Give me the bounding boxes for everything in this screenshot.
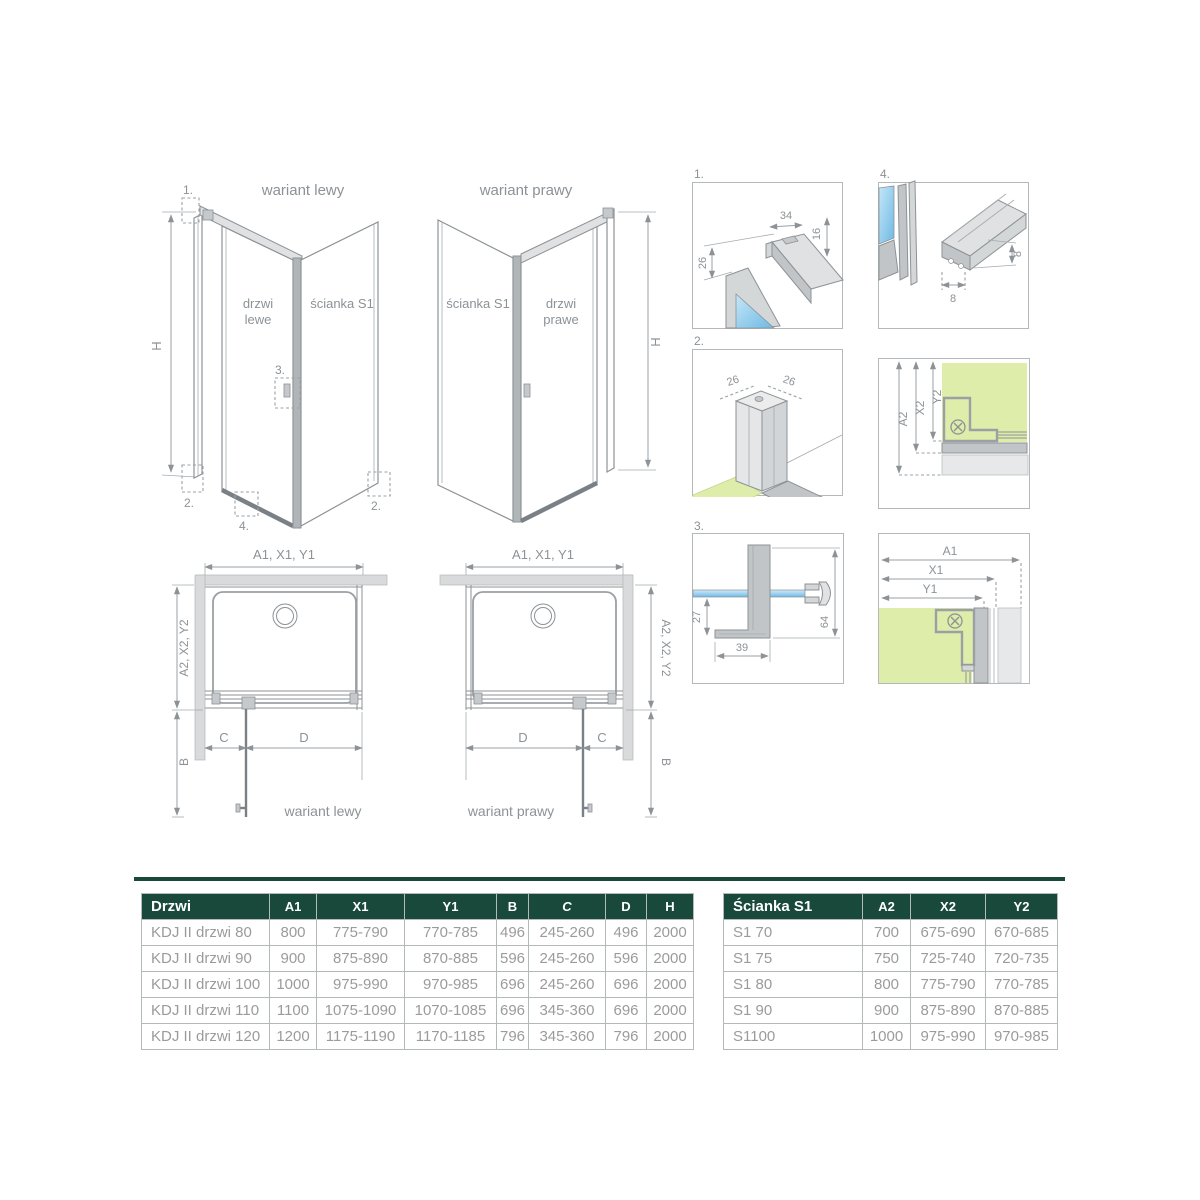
table-cell: 770-785	[986, 972, 1058, 998]
column-header: X2	[911, 894, 986, 920]
dim-8-width: 8	[950, 293, 956, 305]
table-cell: 2000	[647, 998, 694, 1024]
glass-panel	[879, 186, 894, 244]
table-cell: 775-790	[317, 920, 405, 946]
door-table-head: DrzwiA1X1Y1BCDH	[142, 894, 694, 920]
dim-39: 39	[736, 642, 748, 654]
table-cell: 2000	[647, 920, 694, 946]
support-bar-end-face	[766, 242, 772, 258]
door-label-line2: prawe	[543, 312, 578, 327]
wall-label: ścianka S1	[310, 296, 374, 311]
table-row: S11001000975-990970-985	[724, 1024, 1058, 1050]
wall-label: ścianka S1	[446, 296, 510, 311]
dim-a1: A1	[943, 544, 958, 558]
table-cell: 245-260	[529, 920, 606, 946]
dim-34: 34	[780, 210, 792, 222]
dim-y2: Y2	[930, 389, 944, 404]
table-row: S1 70700675-690670-685	[724, 920, 1058, 946]
dim-27: 27	[692, 611, 703, 623]
table-cell: 675-690	[911, 920, 986, 946]
table-cell: 700	[863, 920, 911, 946]
technical-drawing-sheet: wariant lewy H 1. 2. 3.	[0, 0, 1200, 1200]
profile-foot	[962, 665, 974, 671]
bar-bracket	[603, 208, 613, 218]
h-dim-label: H	[648, 337, 663, 346]
table-cell: 596	[497, 946, 529, 972]
table-cell: 496	[497, 920, 529, 946]
table-cell: 900	[863, 998, 911, 1024]
table-cell: 750	[863, 946, 911, 972]
detail-1-label: 1.	[694, 168, 704, 181]
table-cell: 345-360	[529, 1024, 606, 1050]
plan-right-caption: wariant prawy	[467, 803, 554, 819]
dim-d-label: D	[518, 730, 527, 745]
door-handle	[524, 384, 530, 397]
side-dim-label: A2, X2, Y2	[177, 619, 191, 676]
table-cell: 800	[863, 972, 911, 998]
right-wall	[623, 575, 633, 760]
table-cell: 670-685	[986, 920, 1058, 946]
dim-a2: A2	[896, 411, 910, 426]
dim-x1: X1	[929, 563, 944, 577]
height-dimension-right: H	[618, 212, 663, 470]
callout-1-label: 1.	[183, 183, 193, 197]
enclosure-drawing-right	[438, 208, 614, 522]
table-cell: 596	[606, 946, 647, 972]
door-label-line1: drzwi	[243, 296, 273, 311]
detail-1-top-bracket: 1. 34 16 26	[692, 168, 844, 330]
table-cell: KDJ II drzwi 100	[142, 972, 270, 998]
door-label-line1: drzwi	[546, 296, 576, 311]
h-dim-label: H	[149, 341, 164, 350]
door-pivot-block	[242, 697, 255, 709]
wall-table-body: S1 70700675-690670-685S1 75750725-740720…	[724, 920, 1058, 1050]
table-row: S1 75750725-740720-735	[724, 946, 1058, 972]
header-row: DrzwiA1X1Y1BCDH	[142, 894, 694, 920]
rail-fitting-right	[350, 693, 358, 704]
table-cell: 796	[497, 1024, 529, 1050]
column-header: Drzwi	[142, 894, 270, 920]
shower-tray	[473, 592, 616, 703]
section-door-wall: A1 X1 Y1	[878, 520, 1030, 688]
column-header: H	[647, 894, 694, 920]
table-cell: 1100	[270, 998, 317, 1024]
rail-fitting-left	[212, 693, 220, 704]
table-cell: 696	[606, 972, 647, 998]
door-label-line2: lewe	[245, 312, 272, 327]
dim-26: 26	[697, 257, 709, 269]
corner-post	[513, 256, 521, 522]
top-wall	[440, 575, 632, 585]
plan-right-enclosure	[466, 585, 623, 817]
column-header: X1	[317, 894, 405, 920]
column-header: Ścianka S1	[724, 894, 863, 920]
table-cell: 720-735	[986, 946, 1058, 972]
iso-left-title: wariant lewy	[261, 182, 345, 199]
section-wall-s1: Y2 X2 A2	[878, 345, 1030, 510]
table-cell: 800	[270, 920, 317, 946]
door-profile	[898, 184, 908, 280]
table-cell: S1100	[724, 1024, 863, 1050]
dim-8-height: 8	[1012, 251, 1024, 257]
top-wall	[197, 575, 387, 585]
wall-dimensions-table: Ścianka S1A2X2Y2 S1 70700675-690670-685S…	[723, 893, 1058, 1050]
table-cell: S1 80	[724, 972, 863, 998]
callout-2-right-label: 2.	[371, 499, 381, 513]
table-cell: 970-985	[405, 972, 497, 998]
table-cell: 775-790	[911, 972, 986, 998]
column-header: Y2	[986, 894, 1058, 920]
table-cell: 1170-1185	[405, 1024, 497, 1050]
detail-4-label: 4.	[880, 168, 890, 181]
door-dimensions-table: DrzwiA1X1Y1BCDH KDJ II drzwi 80800775-79…	[141, 893, 694, 1050]
table-cell: KDJ II drzwi 110	[142, 998, 270, 1024]
plan-left-top-dim-label: A1, X1, Y1	[253, 547, 315, 562]
dim-64: 64	[819, 616, 831, 628]
door-pivot-block	[573, 697, 586, 709]
table-cell: 1070-1085	[405, 998, 497, 1024]
table-cell: 770-785	[405, 920, 497, 946]
table-cell: 875-890	[911, 998, 986, 1024]
detail-3-label: 3.	[694, 520, 704, 533]
table-row: KDJ II drzwi 11011001075-10901070-108569…	[142, 998, 694, 1024]
post-top-hole	[755, 397, 763, 402]
table-cell: 345-360	[529, 998, 606, 1024]
table-cell: 975-990	[911, 1024, 986, 1050]
section-door-drawing	[879, 608, 1021, 683]
table-row: KDJ II drzwi 1001000975-990970-985696245…	[142, 972, 694, 998]
table-cell: S1 90	[724, 998, 863, 1024]
plan-view-left: A1, X1, Y1	[158, 545, 413, 845]
iso-right-title: wariant prawy	[479, 182, 573, 199]
column-header: C	[529, 894, 606, 920]
detail-3-handle-section: 3. 27 39 64	[692, 520, 844, 688]
table-cell: 2000	[647, 972, 694, 998]
door-profile-outer	[909, 181, 917, 285]
height-dimension-left: H	[149, 212, 196, 477]
door-handle	[284, 384, 290, 397]
side-wall-edge	[998, 608, 1021, 683]
dim-y1: Y1	[923, 582, 938, 596]
rail-fitting-left	[474, 693, 482, 704]
dim-c-label: C	[219, 730, 228, 745]
rail-fitting-right	[608, 693, 616, 704]
table-cell: 1075-1090	[317, 998, 405, 1024]
shower-tray-edge	[942, 455, 1028, 475]
table-cell: KDJ II drzwi 90	[142, 946, 270, 972]
table-cell: 696	[497, 998, 529, 1024]
callout-2-left-label: 2.	[184, 496, 194, 510]
dim-b-label: B	[177, 758, 191, 766]
side-dim-label: A2, X2, Y2	[659, 619, 673, 676]
table-cell: 1000	[863, 1024, 911, 1050]
door-table-body: KDJ II drzwi 80800775-790770-785496245-2…	[142, 920, 694, 1050]
plan-left-caption: wariant lewy	[283, 803, 361, 819]
wall-profile-strip	[974, 608, 988, 683]
table-cell: S1 75	[724, 946, 863, 972]
dim-x2: X2	[913, 400, 927, 415]
table-cell: 696	[497, 972, 529, 998]
tables-divider	[134, 877, 1065, 881]
isometric-view-right: wariant prawy H ścianka S1 drzwi prawe	[408, 168, 708, 568]
table-row: S1 80800775-790770-785	[724, 972, 1058, 998]
column-header: B	[497, 894, 529, 920]
header-row: Ścianka S1A2X2Y2	[724, 894, 1058, 920]
table-cell: KDJ II drzwi 80	[142, 920, 270, 946]
dim-b-label: B	[659, 758, 673, 766]
table-row: KDJ II drzwi 90900875-890870-885596245-2…	[142, 946, 694, 972]
column-header: A1	[270, 894, 317, 920]
table-cell: 2000	[647, 1024, 694, 1050]
table-cell: 2000	[647, 946, 694, 972]
left-wall	[195, 575, 205, 760]
table-cell: 245-260	[529, 972, 606, 998]
table-cell: 900	[270, 946, 317, 972]
side-wall-glass-panel	[301, 222, 378, 526]
isometric-view-left: wariant lewy H 1. 2. 3.	[148, 168, 448, 568]
wall-table-head: Ścianka S1A2X2Y2	[724, 894, 1058, 920]
bottom-profile	[942, 443, 1027, 453]
enclosure-drawing-left	[194, 206, 378, 528]
table-cell: 796	[606, 1024, 647, 1050]
detail-4-bottom-seal: 4. 8 8	[878, 168, 1030, 330]
column-header: A2	[863, 894, 911, 920]
bar-bracket	[203, 210, 213, 220]
table-cell: 1000	[270, 972, 317, 998]
table-cell: 970-985	[986, 1024, 1058, 1050]
callout-3-label: 3.	[275, 363, 285, 377]
side-wall-glass-panel	[438, 220, 513, 521]
column-header: Y1	[405, 894, 497, 920]
table-row: S1 90900875-890870-885	[724, 998, 1058, 1024]
table-cell: 696	[606, 998, 647, 1024]
detail-2-label: 2.	[694, 335, 704, 348]
plan-right-top-dim-label: A1, X1, Y1	[512, 547, 574, 562]
table-cell: KDJ II drzwi 120	[142, 1024, 270, 1050]
table-row: KDJ II drzwi 80800775-790770-785496245-2…	[142, 920, 694, 946]
clamp-jaw-top	[805, 584, 819, 590]
dim-16: 16	[811, 228, 823, 240]
table-cell: 975-990	[317, 972, 405, 998]
table-cell: 1200	[270, 1024, 317, 1050]
table-cell: 496	[606, 920, 647, 946]
plan-view-right: A1, X1, Y1	[423, 545, 681, 845]
post-right-face	[762, 401, 787, 491]
dim-c-label: C	[597, 730, 606, 745]
section-s1-drawing	[942, 363, 1028, 475]
table-cell: 245-260	[529, 946, 606, 972]
callout-4-label: 4.	[239, 519, 249, 533]
shower-tray	[213, 592, 356, 703]
clamp-jaw-bottom	[805, 597, 819, 603]
column-header: D	[606, 894, 647, 920]
table-cell: 870-885	[405, 946, 497, 972]
hinge-filler-panel	[607, 209, 614, 472]
dim-d-label: D	[299, 730, 308, 745]
table-cell: S1 70	[724, 920, 863, 946]
table-cell: 870-885	[986, 998, 1058, 1024]
plan-left-enclosure	[205, 585, 362, 817]
table-cell: 725-740	[911, 946, 986, 972]
table-cell: 875-890	[317, 946, 405, 972]
table-cell: 1175-1190	[317, 1024, 405, 1050]
table-row: KDJ II drzwi 12012001175-11901170-118579…	[142, 1024, 694, 1050]
door-glass-panel	[521, 225, 597, 521]
detail-2-corner-profile: 2. 26 26	[692, 335, 844, 497]
